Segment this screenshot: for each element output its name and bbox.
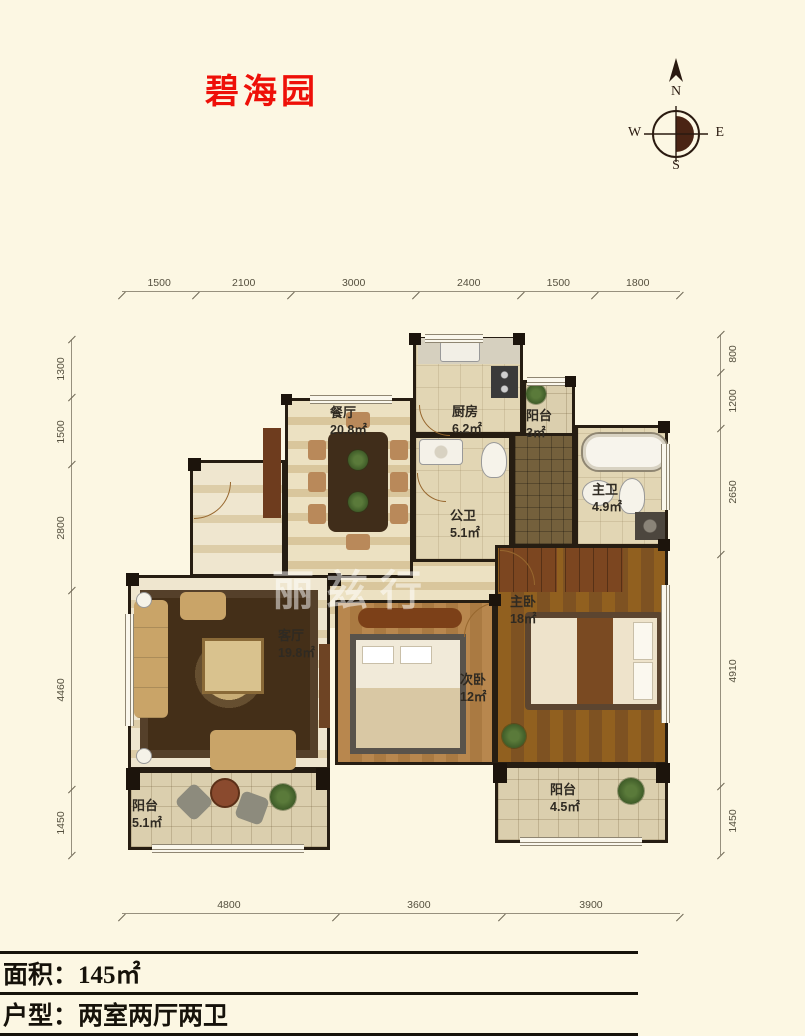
balcony-table [210,778,240,808]
dimension-chain-bottom: 4800 3600 3900 [122,898,680,914]
room-area: 12㎡ [460,689,486,705]
wall-pier [493,763,507,783]
wall-pier [188,458,201,471]
bathtub [581,432,669,472]
armchair [180,592,226,620]
pillow [400,646,432,664]
label-balcony-southeast: 阳台 4.5㎡ [550,782,580,815]
wall-pier [126,768,140,790]
floor-lamp [136,748,152,764]
area-row: 面积：145㎡ [0,954,638,995]
toilet [619,478,645,514]
label-second-bedroom: 次卧 12㎡ [460,672,486,705]
room-area: 4.9㎡ [592,499,622,515]
sink [419,439,463,465]
label-master-bedroom: 主卧 18㎡ [510,594,536,627]
watermark: 丽兹行 [272,557,434,618]
label-guest-bath: 公卫 5.1㎡ [450,508,480,541]
plant-icon [526,384,546,404]
window [661,444,670,510]
dimension-chain-left: 1300 1500 2800 4460 1450 [56,340,72,855]
dim-value: 4800 [217,900,240,914]
plant-icon [618,778,644,804]
sofa [134,600,168,718]
dining-chair [390,504,408,524]
room-name: 主卫 [592,482,622,499]
dim-value: 1450 [727,809,739,832]
compass-west-label: W [628,125,641,141]
dining-table [328,432,388,532]
label-balcony-southwest: 阳台 5.1㎡ [132,798,162,831]
info-table: 面积：145㎡ 户型：两室两厅两卫 [0,951,638,1036]
bed-throw [577,618,613,704]
wall-pier [281,394,292,405]
window [661,585,670,723]
dim-value: 1500 [147,278,170,292]
dining-chair [308,440,326,460]
layout-row: 户型：两室两厅两卫 [0,995,638,1036]
floorplan-page: 碧海园 N S W E 1500 2100 3000 2400 1500 180… [0,0,805,1034]
coffee-table [202,638,264,694]
room-area: 3㎡ [526,425,552,441]
dining-chair [308,472,326,492]
kitchen-sink [440,341,480,362]
compass-south-label: S [672,158,680,174]
room-area: 5.1㎡ [132,815,162,831]
layout-text: 户型：两室两厅两卫 [3,996,228,1032]
sofa [210,730,296,770]
room-name: 公卫 [450,508,480,525]
plant-icon [348,450,368,470]
compass-icon [626,56,726,174]
plant-icon [270,784,296,810]
dim-value: 1500 [547,278,570,292]
room-area: 18㎡ [510,611,536,627]
dim-value: 4460 [55,679,67,702]
floor-plan: 丽兹行 餐厅 20.8㎡ 厨房 6.2㎡ 阳台 3㎡ 主卫 4.9㎡ 公卫 5.… [122,332,670,856]
dim-value: 1800 [626,278,649,292]
dining-chair [390,472,408,492]
dining-chair [308,504,326,524]
window [527,377,569,386]
dim-value: 2800 [55,516,67,539]
sideboard [263,428,281,518]
room-name: 厨房 [452,404,482,421]
room-name: 餐厅 [330,405,367,422]
window [152,844,304,853]
wall-pier [513,333,525,345]
room-area: 6.2㎡ [452,421,482,437]
tv-cabinet [319,644,330,728]
dimension-chain-top: 1500 2100 3000 2400 1500 1800 [122,276,680,292]
plant-icon [348,492,368,512]
dim-value: 1500 [55,420,67,443]
room-name: 阳台 [132,798,162,815]
washing-machine [635,512,665,540]
floor-lamp [136,592,152,608]
wall-pier [489,594,501,606]
wall-pier [565,376,576,387]
pillow [362,646,394,664]
compass-north-label: N [671,84,681,100]
window [520,837,642,846]
dim-value: 2400 [457,278,480,292]
dim-value: 3600 [407,900,430,914]
room-name: 阳台 [526,408,552,425]
wall-pier [409,333,421,345]
label-living: 客厅 19.8㎡ [278,628,315,661]
plant-icon [502,724,526,748]
wall-pier [316,768,330,790]
area-text: 面积：145㎡ [3,955,141,991]
label-kitchen: 厨房 6.2㎡ [452,404,482,437]
room-name: 次卧 [460,672,486,689]
dim-value: 2100 [232,278,255,292]
room-balcony-southeast [495,765,668,843]
room-area: 4.5㎡ [550,799,580,815]
dim-value: 4910 [727,659,739,682]
label-dining: 餐厅 20.8㎡ [330,405,367,438]
wall-pier [658,539,670,551]
room-area: 5.1㎡ [450,525,480,541]
room-closet [512,433,575,547]
dim-value: 1200 [727,389,739,412]
dining-chair [346,534,370,550]
label-balcony-north: 阳台 3㎡ [526,408,552,441]
window [310,395,392,404]
compass-rose: N S W E [626,56,726,174]
dining-chair [390,440,408,460]
room-area: 19.8㎡ [278,645,315,661]
room-name: 阳台 [550,782,580,799]
stove [491,366,518,398]
dim-value: 3000 [342,278,365,292]
label-master-bath: 主卫 4.9㎡ [592,482,622,515]
dim-value: 800 [727,345,739,363]
dim-value: 1450 [55,811,67,834]
wall-pier [126,573,139,586]
wall-pier [658,421,670,433]
compass-east-label: E [715,125,724,141]
dim-value: 3900 [579,900,602,914]
page-title: 碧海园 [205,64,319,113]
toilet [481,442,507,478]
pillow [633,662,653,700]
blanket [356,688,460,748]
pillow [633,622,653,660]
dim-value: 1300 [55,357,67,380]
dimension-chain-right: 800 1200 2650 4910 1450 [720,335,736,855]
room-name: 主卧 [510,594,536,611]
wardrobe [565,548,623,592]
dim-value: 2650 [727,480,739,503]
window [425,334,483,343]
wall-pier [656,763,670,783]
room-area: 20.8㎡ [330,422,367,438]
room-name: 客厅 [278,628,315,645]
window [125,614,134,726]
